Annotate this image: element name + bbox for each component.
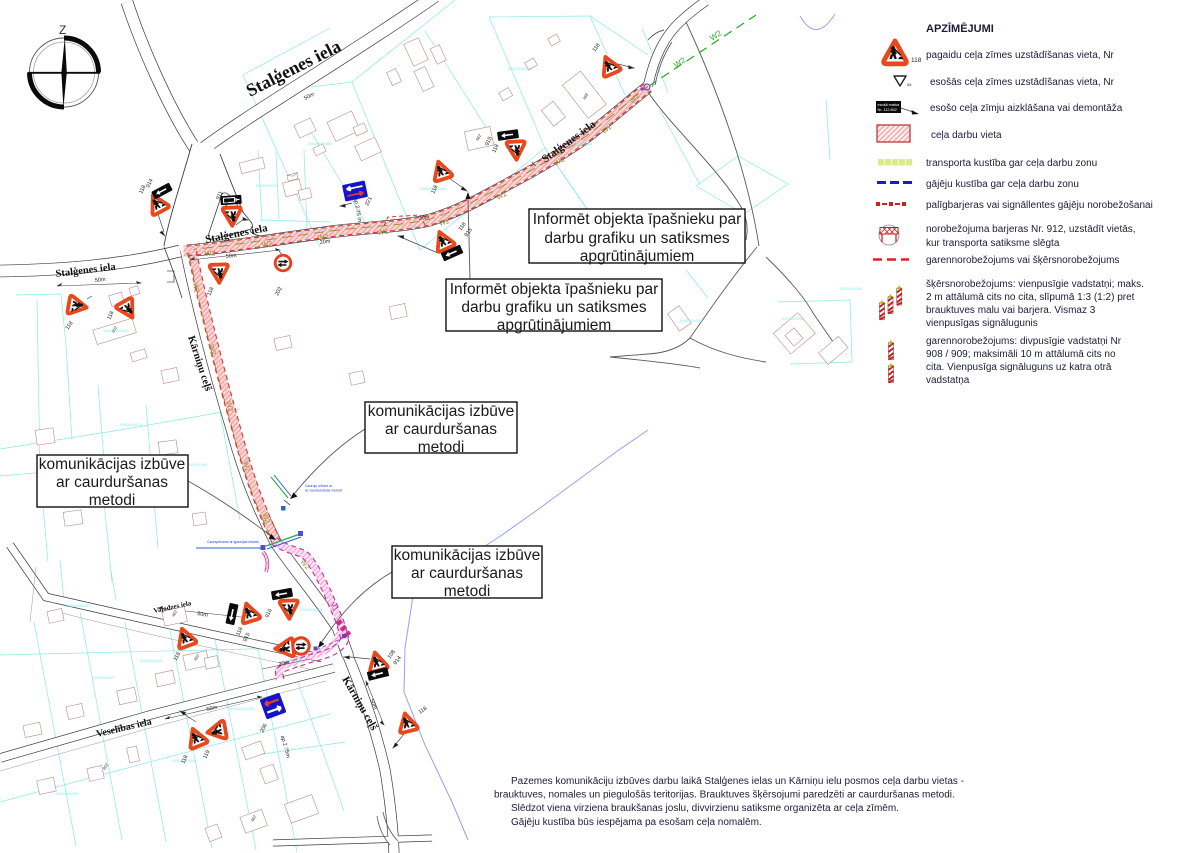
svg-text:metodi: metodi [444, 583, 491, 600]
svg-text:0952004027: 0952004027 [93, 675, 116, 680]
svg-text:09520040262: 09520040262 [66, 603, 91, 608]
svg-text:Gājēju kustība būs iespējama p: Gājēju kustība būs iespējama pa esošam c… [511, 817, 762, 828]
svg-text:garennorobežojums vai šķērsnor: garennorobežojums vai šķērsnorobežojums [926, 255, 1119, 266]
svg-text:metodi: metodi [89, 492, 136, 509]
svg-text:apgrūtinājumiem: apgrūtinājumiem [580, 248, 695, 265]
svg-text:09520040242: 09520040242 [104, 328, 129, 333]
svg-text:palīgbarjeras vai signāllentes: palīgbarjeras vai signāllentes gājēju no… [926, 200, 1153, 211]
svg-text:Slēdzot viena virziena braukša: Slēdzot viena virziena braukšanas joslu,… [511, 803, 899, 814]
svg-text:Pazemes komunikāciju izbūves d: Pazemes komunikāciju izbūves darbu laikā… [511, 774, 964, 787]
svg-text:gājēju kustība gar ceļa darbu: gājēju kustība gar ceļa darbu zonu [926, 179, 1079, 190]
svg-text:kur transporta satiksme slēgta: kur transporta satiksme slēgta [926, 238, 1060, 249]
svg-text:Informēt objekta īpašnieku par: Informēt objekta īpašnieku par [533, 211, 742, 228]
svg-text:vadstatņa: vadstatņa [926, 375, 970, 386]
svg-text:118: 118 [911, 57, 922, 64]
svg-text:brauktuves malu vai barjera. V: brauktuves malu vai barjera. Vismaz 3 [926, 305, 1096, 316]
svg-text:komunikācijas izbūve: komunikācijas izbūve [394, 547, 540, 564]
svg-text:Z: Z [59, 23, 66, 37]
svg-text:darbu grafiku un satiksmes: darbu grafiku un satiksmes [461, 299, 646, 316]
svg-text:brauktuves, nomales un piegulo: brauktuves, nomales un piegulošās terito… [494, 790, 955, 801]
svg-text:09520040585: 09520040585 [308, 141, 333, 146]
svg-text:metodi: metodi [418, 439, 465, 456]
svg-text:09520040234: 09520040234 [230, 706, 255, 711]
svg-text:Informēt objekta īpašnieku par: Informēt objekta īpašnieku par [450, 281, 659, 298]
svg-text:esošā marka: esošā marka [878, 103, 901, 107]
svg-text:Caurspiesana ar igaunijas ieka: Caurspiesana ar igaunijas iekartu [207, 540, 259, 544]
svg-text:0952016009: 0952016009 [56, 791, 79, 796]
svg-text:0952004036: 0952004036 [300, 607, 323, 612]
svg-text:0952004023: 0952004023 [140, 658, 163, 663]
svg-text:50m: 50m [95, 277, 107, 284]
svg-text:komunikācijas izbūve: komunikācijas izbūve [368, 403, 514, 420]
svg-text:norobežojuma barjeras Nr. 912,: norobežojuma barjeras Nr. 912, uzstādīt … [926, 224, 1136, 235]
svg-text:vienpusīgas signālugunis: vienpusīgas signālugunis [926, 318, 1038, 329]
svg-text:0952004074: 0952004074 [120, 422, 143, 427]
svg-text:ar caurduršanas: ar caurduršanas [411, 565, 523, 582]
svg-text:pagaidu ceļa zīmes uzstādīšana: pagaidu ceļa zīmes uzstādīšanas vieta, N… [926, 50, 1115, 61]
svg-text:darbu grafiku un satiksmes: darbu grafiku un satiksmes [544, 230, 729, 247]
svg-text:apgrūtinājumiem: apgrūtinājumiem [497, 317, 612, 334]
svg-text:0952004024: 0952004024 [256, 183, 279, 188]
svg-text:esošo ceļa zīmju aizklāšana va: esošo ceļa zīmju aizklāšana vai demontāž… [930, 103, 1123, 114]
svg-text:09520040242: 09520040242 [508, 66, 533, 71]
svg-text:W2: W2 [205, 250, 216, 258]
svg-text:ar caurduršanas: ar caurduršanas [56, 474, 168, 491]
svg-text:garennorobežojums: divpusīgie: garennorobežojums: divpusīgie vadstatņi … [926, 336, 1122, 347]
svg-text:esošās ceļa zīmes uzstādīšanas: esošās ceļa zīmes uzstādīšanas vieta, Nr [930, 77, 1115, 88]
svg-text:2 m attālumā cits no cita, slī: 2 m attālumā cits no cita, slīpumā 1:3 (… [926, 292, 1135, 303]
svg-text:0952004049: 0952004049 [782, 316, 805, 321]
svg-text:Cauruju izbuve ar: Cauruju izbuve ar [305, 484, 333, 488]
svg-text:ar caurdursanas metodi: ar caurdursanas metodi [305, 489, 342, 493]
svg-text:0952004050: 0952004050 [840, 286, 863, 291]
svg-text:xx: xx [907, 82, 912, 87]
svg-text:W2: W2 [261, 241, 272, 249]
svg-text:cita. Vienpusīga signāluguns u: cita. Vienpusīga signāluguns uz katra ot… [926, 362, 1112, 373]
svg-text:Nr. 112.802: Nr. 112.802 [878, 108, 897, 112]
svg-text:transporta kustība gar ceļa da: transporta kustība gar ceļa darbu zonu [926, 158, 1097, 169]
svg-text:908 / 909; maksimāli 10 m attā: 908 / 909; maksimāli 10 m attālumā cits … [926, 349, 1116, 360]
svg-text:APZĪMĒJUMI: APZĪMĒJUMI [926, 23, 994, 35]
svg-text:ceļa darbu vieta: ceļa darbu vieta [931, 130, 1002, 141]
svg-text:komunikācijas izbūve: komunikācijas izbūve [39, 456, 185, 473]
svg-text:0952004048: 0952004048 [680, 318, 703, 323]
svg-text:W2: W2 [377, 229, 388, 237]
svg-text:ar caurduršanas: ar caurduršanas [385, 421, 497, 438]
svg-text:šķērsnorobežojums: vienpusīgie: šķērsnorobežojums: vienpusīgie vadstatņi… [926, 279, 1144, 290]
svg-text:50m: 50m [226, 253, 238, 260]
